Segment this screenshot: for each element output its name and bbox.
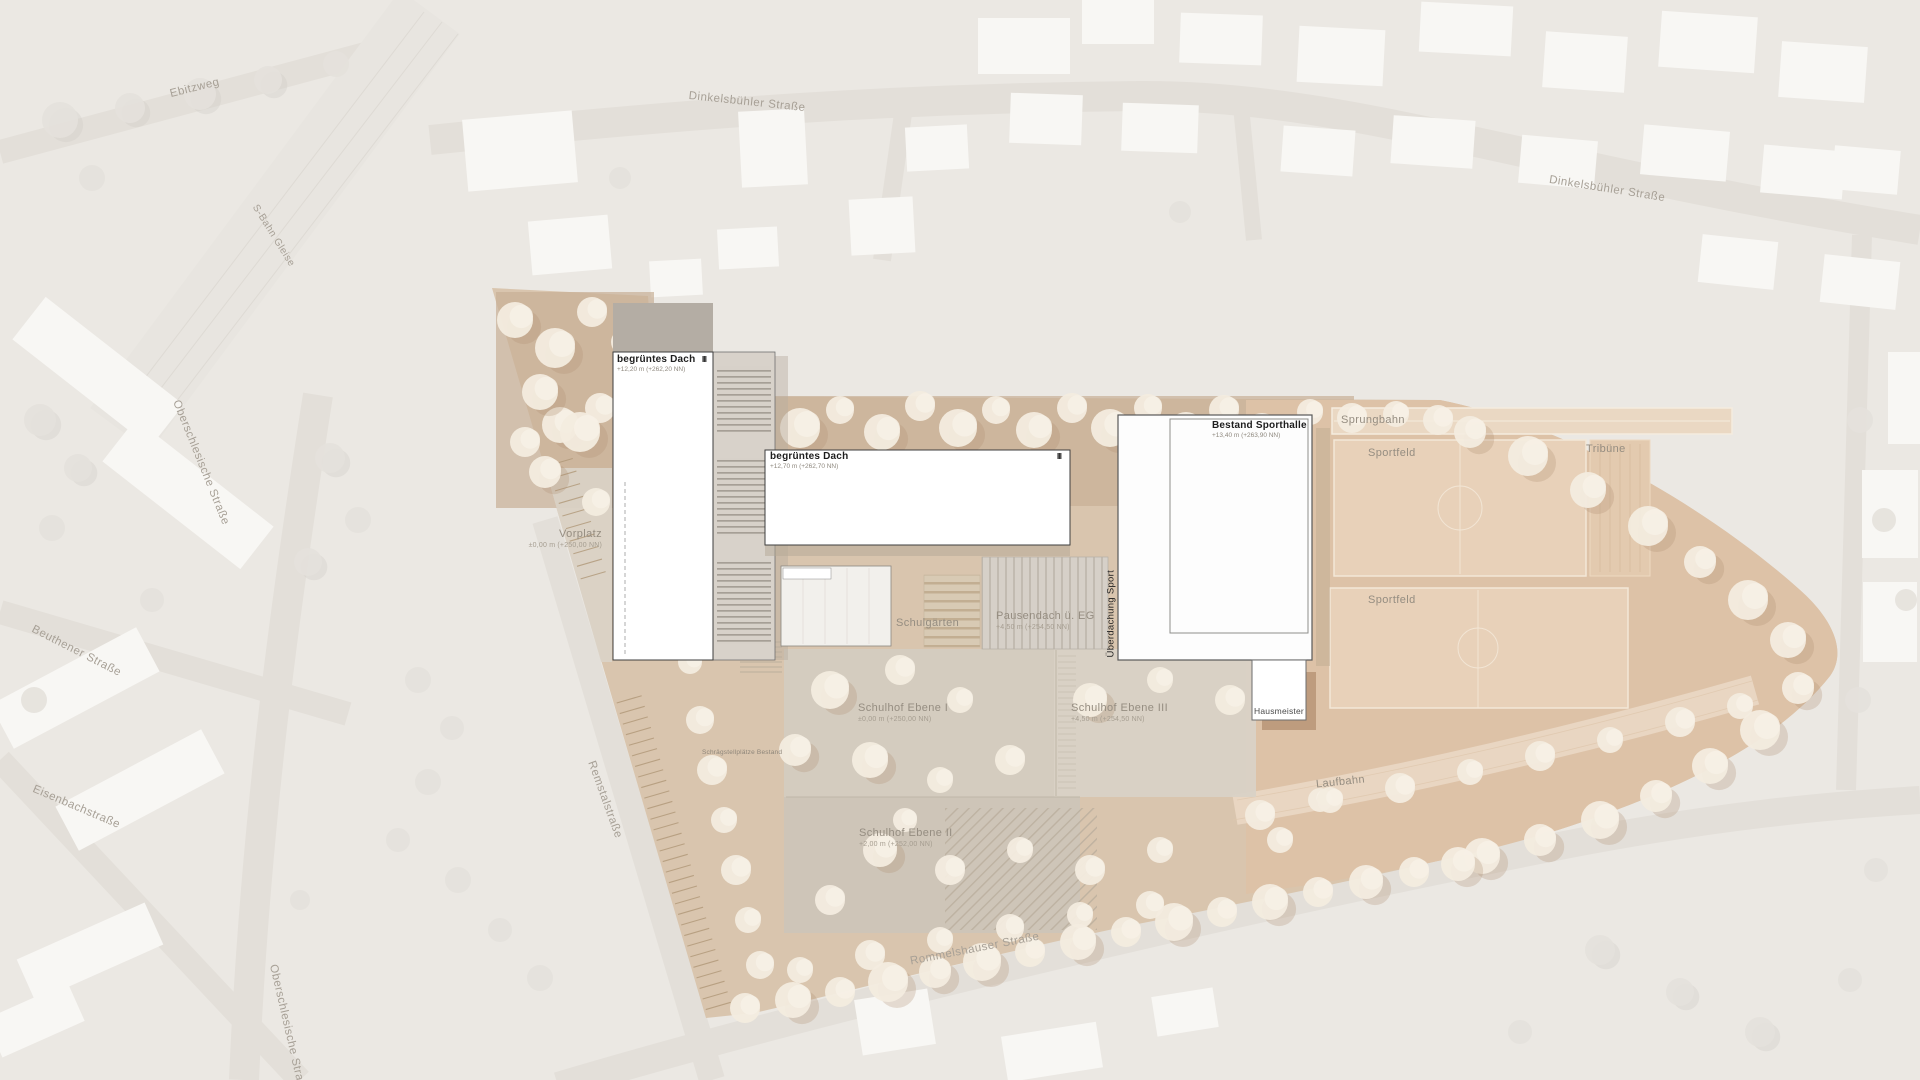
- vorplatz-title: Vorplatz: [472, 528, 602, 541]
- area-label-stellplaetze: Schrägstellplätze Bestand: [702, 749, 782, 757]
- building-label-hausmeister: Hausmeister: [1252, 706, 1306, 716]
- area-label-pausendach: Pausendach ü. EG +4,50 m (+254,50 NN): [996, 610, 1095, 633]
- school-b-storey-mark: III: [1057, 452, 1061, 461]
- school-b-title: begrüntes Dach: [770, 452, 1064, 463]
- schulhof-1-title: Schulhof Ebene I: [858, 702, 948, 715]
- pausendach-elevation: +4,50 m (+254,50 NN): [996, 624, 1095, 632]
- sprungbahn-title: Sprungbahn: [1341, 414, 1405, 427]
- school-b-elevation: +12,70 m (+262,70 NN): [770, 464, 1064, 471]
- sportfeld-nord-title: Sportfeld: [1368, 447, 1416, 460]
- building-label-ueberdachung-sport: Überdachung Sport: [1105, 555, 1116, 673]
- schulhof-3-elevation: +4,50 m (+254,50 NN): [1071, 716, 1168, 724]
- schulhof-1-elevation: ±0,00 m (+250,00 NN): [858, 716, 948, 724]
- school-building-a: [613, 352, 713, 660]
- schulhof-2-title: Schulhof Ebene II: [859, 827, 953, 840]
- school-a-storey-mark: III: [702, 355, 706, 364]
- sporthalle-building: [1118, 415, 1312, 660]
- site-plan-canvas: [0, 0, 1920, 1080]
- sporthalle-title: Bestand Sporthalle: [1212, 421, 1342, 432]
- area-label-sprungbahn: Sprungbahn: [1341, 414, 1405, 427]
- schulhof-2-elevation: +2,00 m (+252,00 NN): [859, 841, 953, 849]
- vorplatz-elevation: ±0,00 m (+250,00 NN): [472, 542, 602, 550]
- school-a-lower-roof: [613, 303, 713, 353]
- building-label-school-a: begrüntes Dach +12,20 m (+262,20 NN) III: [617, 355, 709, 373]
- schulgaerten-title: Schulgärten: [896, 617, 959, 630]
- tribuene-title: Tribüne: [1586, 443, 1626, 456]
- pausendach-title: Pausendach ü. EG: [996, 610, 1095, 623]
- site-plan: Ebitzweg Dinkelsbühler Straße Dinkelsbüh…: [0, 0, 1920, 1080]
- area-label-sportfeld-nord: Sportfeld: [1368, 447, 1416, 460]
- area-label-vorplatz: Vorplatz ±0,00 m (+250,00 NN): [472, 528, 602, 551]
- building-label-school-b: begrüntes Dach +12,70 m (+262,70 NN) III: [770, 452, 1064, 470]
- area-label-schulgaerten: Schulgärten: [896, 617, 959, 630]
- building-label-sporthalle: Bestand Sporthalle +13,40 m (+263,90 NN): [1212, 421, 1342, 439]
- school-a-elevation: +12,20 m (+262,20 NN): [617, 367, 709, 374]
- area-label-sportfeld-sued: Sportfeld: [1368, 594, 1416, 607]
- area-label-schulhof-ebene-2: Schulhof Ebene II +2,00 m (+252,00 NN): [859, 827, 953, 850]
- sporthalle-elevation: +13,40 m (+263,90 NN): [1212, 433, 1342, 440]
- area-label-tribuene: Tribüne: [1586, 443, 1626, 456]
- area-label-schulhof-ebene-3: Schulhof Ebene III +4,50 m (+254,50 NN): [1071, 702, 1168, 725]
- schulhof-3-title: Schulhof Ebene III: [1071, 702, 1168, 715]
- sportfeld-sued-title: Sportfeld: [1368, 594, 1416, 607]
- area-label-schulhof-ebene-1: Schulhof Ebene I ±0,00 m (+250,00 NN): [858, 702, 948, 725]
- school-a-title: begrüntes Dach: [617, 355, 709, 366]
